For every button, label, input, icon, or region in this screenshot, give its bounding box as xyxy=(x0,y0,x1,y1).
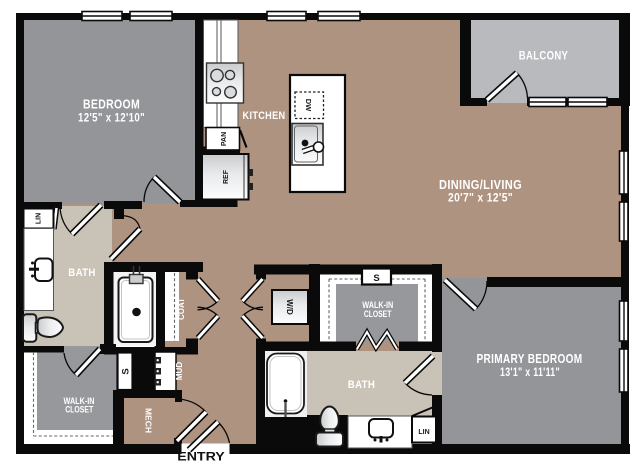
svg-text:S: S xyxy=(121,368,132,374)
svg-text:DINING/LIVING: DINING/LIVING xyxy=(439,178,522,192)
svg-text:CLOSET: CLOSET xyxy=(65,405,93,416)
svg-text:BALCONY: BALCONY xyxy=(519,51,569,63)
svg-text:PRIMARY BEDROOM: PRIMARY BEDROOM xyxy=(477,351,583,366)
svg-text:MUD: MUD xyxy=(175,362,184,380)
svg-text:COAT: COAT xyxy=(177,298,186,320)
svg-text:W/D: W/D xyxy=(285,299,294,315)
svg-text:CLOSET: CLOSET xyxy=(364,309,392,320)
svg-text:KITCHEN: KITCHEN xyxy=(243,110,286,122)
svg-text:BEDROOM: BEDROOM xyxy=(83,98,140,112)
svg-text:DW: DW xyxy=(304,99,313,112)
svg-text:20'7" x 12'5": 20'7" x 12'5" xyxy=(448,193,513,205)
svg-text:LIN: LIN xyxy=(418,429,429,436)
svg-text:MECH: MECH xyxy=(144,408,154,433)
svg-text:13'1" x 11'11": 13'1" x 11'11" xyxy=(500,367,560,379)
svg-text:BATH: BATH xyxy=(348,379,376,391)
svg-text:S: S xyxy=(373,273,379,284)
svg-text:REF: REF xyxy=(223,169,230,184)
svg-text:12'5" x 12'10": 12'5" x 12'10" xyxy=(78,113,145,125)
svg-text:LIN: LIN xyxy=(36,213,43,224)
svg-text:PAN: PAN xyxy=(221,132,228,146)
svg-text:ENTRY: ENTRY xyxy=(177,452,225,464)
svg-text:BATH: BATH xyxy=(68,267,96,279)
